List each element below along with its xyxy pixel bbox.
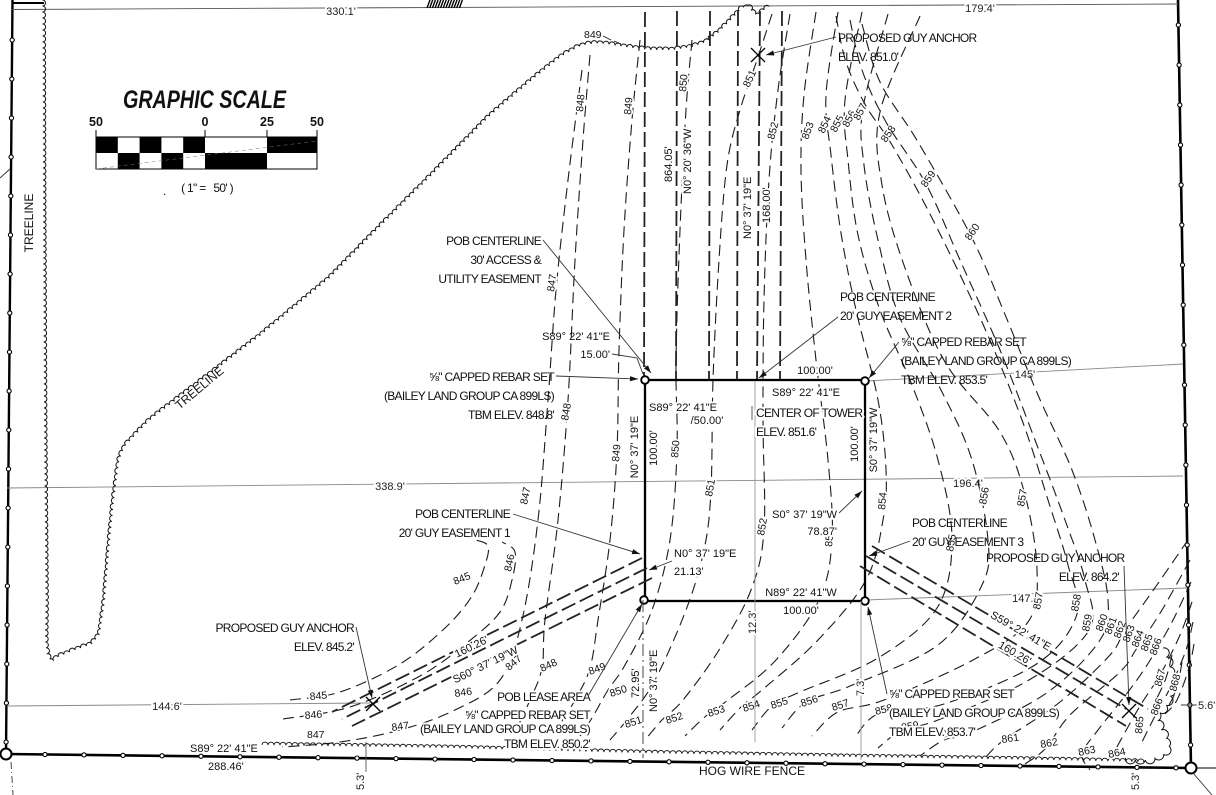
svg-text:N0° 20' 36"W: N0° 20' 36"W bbox=[682, 128, 694, 194]
svg-text:CENTER OF TOWER: CENTER OF TOWER bbox=[756, 406, 863, 420]
svg-text:⅝" CAPPED REBAR SET: ⅝" CAPPED REBAR SET bbox=[889, 687, 1015, 701]
svg-text:(BAILEY LAND GROUP CA 899LS): (BAILEY LAND GROUP CA 899LS) bbox=[420, 722, 591, 736]
svg-text:GRAPHIC SCALE: GRAPHIC SCALE bbox=[123, 86, 287, 114]
svg-text:144.6': 144.6' bbox=[152, 701, 182, 713]
svg-text:N89° 22' 41"W: N89° 22' 41"W bbox=[765, 587, 837, 599]
svg-text:⅝" CAPPED REBAR SET: ⅝" CAPPED REBAR SET bbox=[465, 708, 591, 722]
svg-text:.: . bbox=[163, 184, 166, 198]
svg-text:15.00': 15.00' bbox=[580, 349, 610, 361]
svg-text:POB LEASE AREA: POB LEASE AREA bbox=[497, 690, 591, 704]
svg-text:(BAILEY LAND GROUP CA 899LS): (BAILEY LAND GROUP CA 899LS) bbox=[889, 706, 1060, 720]
svg-text:20' GUY EASEMENT 1: 20' GUY EASEMENT 1 bbox=[399, 526, 511, 540]
svg-text:POB CENTERLINE: POB CENTERLINE bbox=[840, 290, 936, 304]
svg-text:N0° 37' 19"E: N0° 37' 19"E bbox=[674, 548, 736, 560]
svg-text:UTILITY EASEMENT: UTILITY EASEMENT bbox=[438, 272, 542, 286]
svg-text:HOG WIRE FENCE: HOG WIRE FENCE bbox=[699, 764, 805, 778]
svg-text:( 1" = 50' ): ( 1" = 50' ) bbox=[181, 181, 233, 195]
svg-text:846: 846 bbox=[304, 708, 323, 721]
svg-text:N0° 37' 19"E: N0° 37' 19"E bbox=[648, 650, 660, 712]
svg-text:100.00': 100.00' bbox=[648, 430, 660, 466]
svg-text:850: 850 bbox=[677, 74, 690, 93]
svg-text:288.46': 288.46' bbox=[208, 761, 244, 773]
svg-text:TBM ELEV. 853.7': TBM ELEV. 853.7' bbox=[889, 725, 975, 739]
svg-text:S89° 22' 41"E: S89° 22' 41"E bbox=[649, 402, 717, 414]
svg-text:ELEV. 851.0': ELEV. 851.0' bbox=[838, 50, 899, 64]
svg-text:338.9': 338.9' bbox=[375, 481, 405, 493]
svg-text:POB CENTERLINE: POB CENTERLINE bbox=[446, 234, 542, 248]
svg-text:845: 845 bbox=[309, 689, 328, 702]
svg-text:100.00': 100.00' bbox=[783, 605, 819, 617]
svg-text:78.87': 78.87' bbox=[807, 526, 837, 538]
svg-text:850: 850 bbox=[669, 440, 682, 459]
svg-text:PROPOSED GUY ANCHOR: PROPOSED GUY ANCHOR bbox=[986, 551, 1126, 565]
svg-text:TBM ELEV. 853.5': TBM ELEV. 853.5' bbox=[901, 373, 987, 387]
svg-text:854: 854 bbox=[876, 492, 889, 511]
svg-text:168.00': 168.00' bbox=[761, 187, 773, 223]
svg-text:847: 847 bbox=[545, 273, 559, 292]
svg-text:145': 145' bbox=[1015, 369, 1035, 381]
svg-text:50: 50 bbox=[310, 115, 324, 129]
svg-text:0: 0 bbox=[202, 115, 209, 129]
svg-text:S89° 22' 41"E: S89° 22' 41"E bbox=[772, 387, 840, 399]
svg-text:ELEV. 845.2': ELEV. 845.2' bbox=[294, 640, 355, 654]
svg-text:50: 50 bbox=[89, 115, 103, 129]
svg-text:5.3': 5.3' bbox=[355, 773, 367, 790]
svg-text:25: 25 bbox=[260, 115, 274, 129]
svg-text:⅝" CAPPED REBAR SET: ⅝" CAPPED REBAR SET bbox=[901, 335, 1027, 349]
svg-text:847: 847 bbox=[307, 729, 325, 741]
svg-text:7.3': 7.3' bbox=[855, 679, 867, 696]
svg-text:PROPOSED GUY ANCHOR: PROPOSED GUY ANCHOR bbox=[215, 621, 355, 635]
svg-text:N0° 37' 19"E: N0° 37' 19"E bbox=[742, 177, 754, 239]
svg-text:TBM ELEV. 848.8': TBM ELEV. 848.8' bbox=[468, 408, 554, 422]
svg-text:849: 849 bbox=[610, 444, 623, 463]
svg-text:72.95': 72.95' bbox=[630, 668, 642, 698]
svg-text:⅝" CAPPED REBAR SET: ⅝" CAPPED REBAR SET bbox=[429, 370, 555, 384]
svg-text:ELEV. 851.6': ELEV. 851.6' bbox=[756, 425, 817, 439]
svg-text:20' GUY EASEMENT 3: 20' GUY EASEMENT 3 bbox=[912, 535, 1024, 549]
svg-text:847: 847 bbox=[391, 720, 410, 734]
svg-text:TBM ELEV. 850.2': TBM ELEV. 850.2' bbox=[504, 737, 590, 751]
svg-text:POB CENTERLINE: POB CENTERLINE bbox=[912, 516, 1008, 530]
svg-text:S0° 37' 19"W: S0° 37' 19"W bbox=[772, 509, 837, 521]
svg-text:(BAILEY LAND GROUP CA 899LS): (BAILEY LAND GROUP CA 899LS) bbox=[384, 389, 555, 403]
svg-text:S89° 22' 41"E: S89° 22' 41"E bbox=[542, 331, 610, 343]
svg-text:5.3': 5.3' bbox=[1130, 773, 1142, 790]
svg-text:12.3': 12.3' bbox=[747, 610, 759, 634]
svg-text:ELEV. 864.2': ELEV. 864.2' bbox=[1059, 570, 1120, 584]
svg-text:849: 849 bbox=[584, 29, 602, 41]
svg-text:846: 846 bbox=[454, 686, 473, 700]
svg-text:100.00': 100.00' bbox=[797, 365, 833, 377]
svg-text:179.4': 179.4' bbox=[965, 3, 995, 15]
svg-text:861: 861 bbox=[1001, 732, 1020, 746]
svg-text:POB CENTERLINE: POB CENTERLINE bbox=[415, 507, 511, 521]
svg-text:N0° 37' 19"E: N0° 37' 19"E bbox=[629, 416, 641, 478]
svg-text:5.6': 5.6' bbox=[1198, 700, 1215, 712]
svg-text:330.1': 330.1' bbox=[326, 6, 356, 18]
svg-text:(BAILEY LAND GROUP CA 899LS): (BAILEY LAND GROUP CA 899LS) bbox=[901, 354, 1072, 368]
svg-text:100.00': 100.00' bbox=[849, 426, 861, 462]
svg-text:21.13': 21.13' bbox=[674, 566, 704, 578]
svg-text:864.05': 864.05' bbox=[663, 146, 675, 182]
svg-text:/50.00': /50.00' bbox=[691, 415, 724, 427]
svg-text:30' ACCESS &: 30' ACCESS & bbox=[470, 253, 541, 267]
svg-text:20' GUY EASEMENT 2: 20' GUY EASEMENT 2 bbox=[840, 309, 952, 323]
svg-text:848: 848 bbox=[574, 94, 587, 113]
svg-text:S0° 37' 19"W: S0° 37' 19"W bbox=[868, 407, 880, 472]
svg-text:PROPOSED GUY ANCHOR: PROPOSED GUY ANCHOR bbox=[838, 31, 978, 45]
svg-text:TREELINE: TREELINE bbox=[22, 194, 36, 253]
svg-text:865: 865 bbox=[1133, 716, 1146, 735]
svg-text:849: 849 bbox=[622, 97, 635, 116]
svg-text:S89° 22' 41"E: S89° 22' 41"E bbox=[190, 743, 258, 755]
